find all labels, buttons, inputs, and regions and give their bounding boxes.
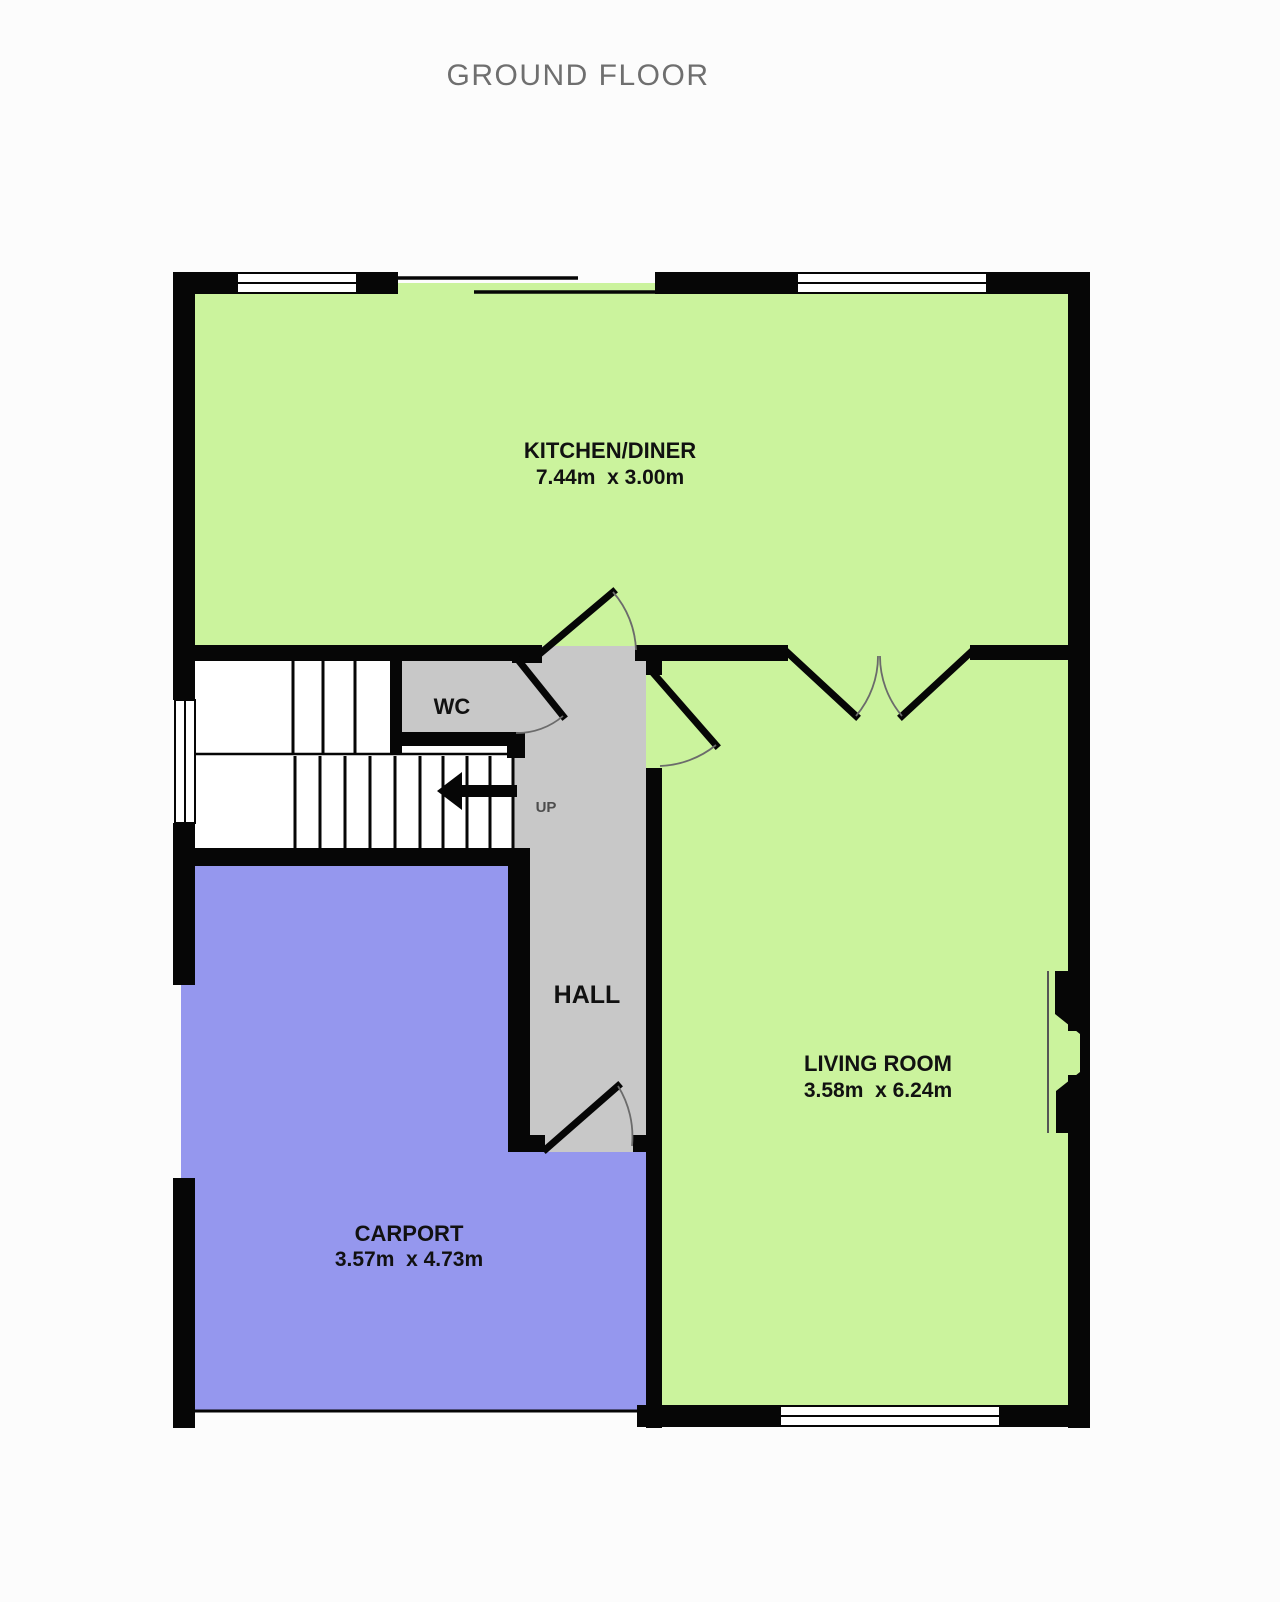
wall-stairs-bottom	[173, 848, 530, 866]
wall-front-door-right-jamb	[633, 1135, 662, 1152]
living-room-dims: 3.58m x 6.24m	[804, 1079, 952, 1102]
wall-front-door-left-jamb	[508, 1135, 545, 1152]
kitchen-dims: 7.44m x 3.00m	[536, 466, 684, 489]
floor-plan: GROUND FLOOR KITCHEN/DINER 7.44m x 3.00m…	[0, 0, 1280, 1602]
plan-title: GROUND FLOOR	[446, 59, 709, 92]
stairs-up-label: UP	[536, 799, 557, 816]
living-room-window	[780, 1406, 1000, 1426]
living-room-label: LIVING ROOM	[804, 1051, 952, 1076]
kitchen-window-right	[797, 273, 987, 293]
wall-right	[1068, 272, 1090, 1428]
wall-hall-left	[508, 866, 530, 1152]
wall-left-1	[173, 272, 195, 700]
wc-floor	[402, 652, 516, 733]
carport-label: CARPORT	[355, 1221, 464, 1246]
kitchen-label: KITCHEN/DINER	[524, 438, 696, 463]
wall-left-3	[173, 1178, 195, 1428]
wall-kitchen-bottom-right	[970, 645, 1090, 660]
wall-top-3	[655, 272, 797, 294]
wall-top-2	[357, 272, 398, 294]
wall-hall-right	[646, 768, 662, 1428]
hall-label: HALL	[554, 981, 621, 1009]
wc-label: WC	[434, 694, 471, 719]
stairs-side-window	[175, 700, 195, 823]
living-room-floor	[662, 658, 1068, 1405]
floor-plan-page: GROUND FLOOR KITCHEN/DINER 7.44m x 3.00m…	[0, 0, 1280, 1602]
carport-open-side-strip	[181, 985, 195, 1178]
hall-living-doorway-floor	[646, 675, 662, 768]
kitchen-window-left	[237, 273, 357, 293]
wall-wc-bottom	[390, 732, 525, 746]
wall-kitchen-bottom-left	[173, 645, 542, 661]
wall-bottom-2	[1000, 1405, 1090, 1427]
carport-dims: 3.57m x 4.73m	[335, 1248, 483, 1271]
wall-left-2	[173, 823, 195, 985]
double-door-opening-floor	[788, 645, 970, 661]
fireplace-recess	[1048, 1031, 1080, 1075]
